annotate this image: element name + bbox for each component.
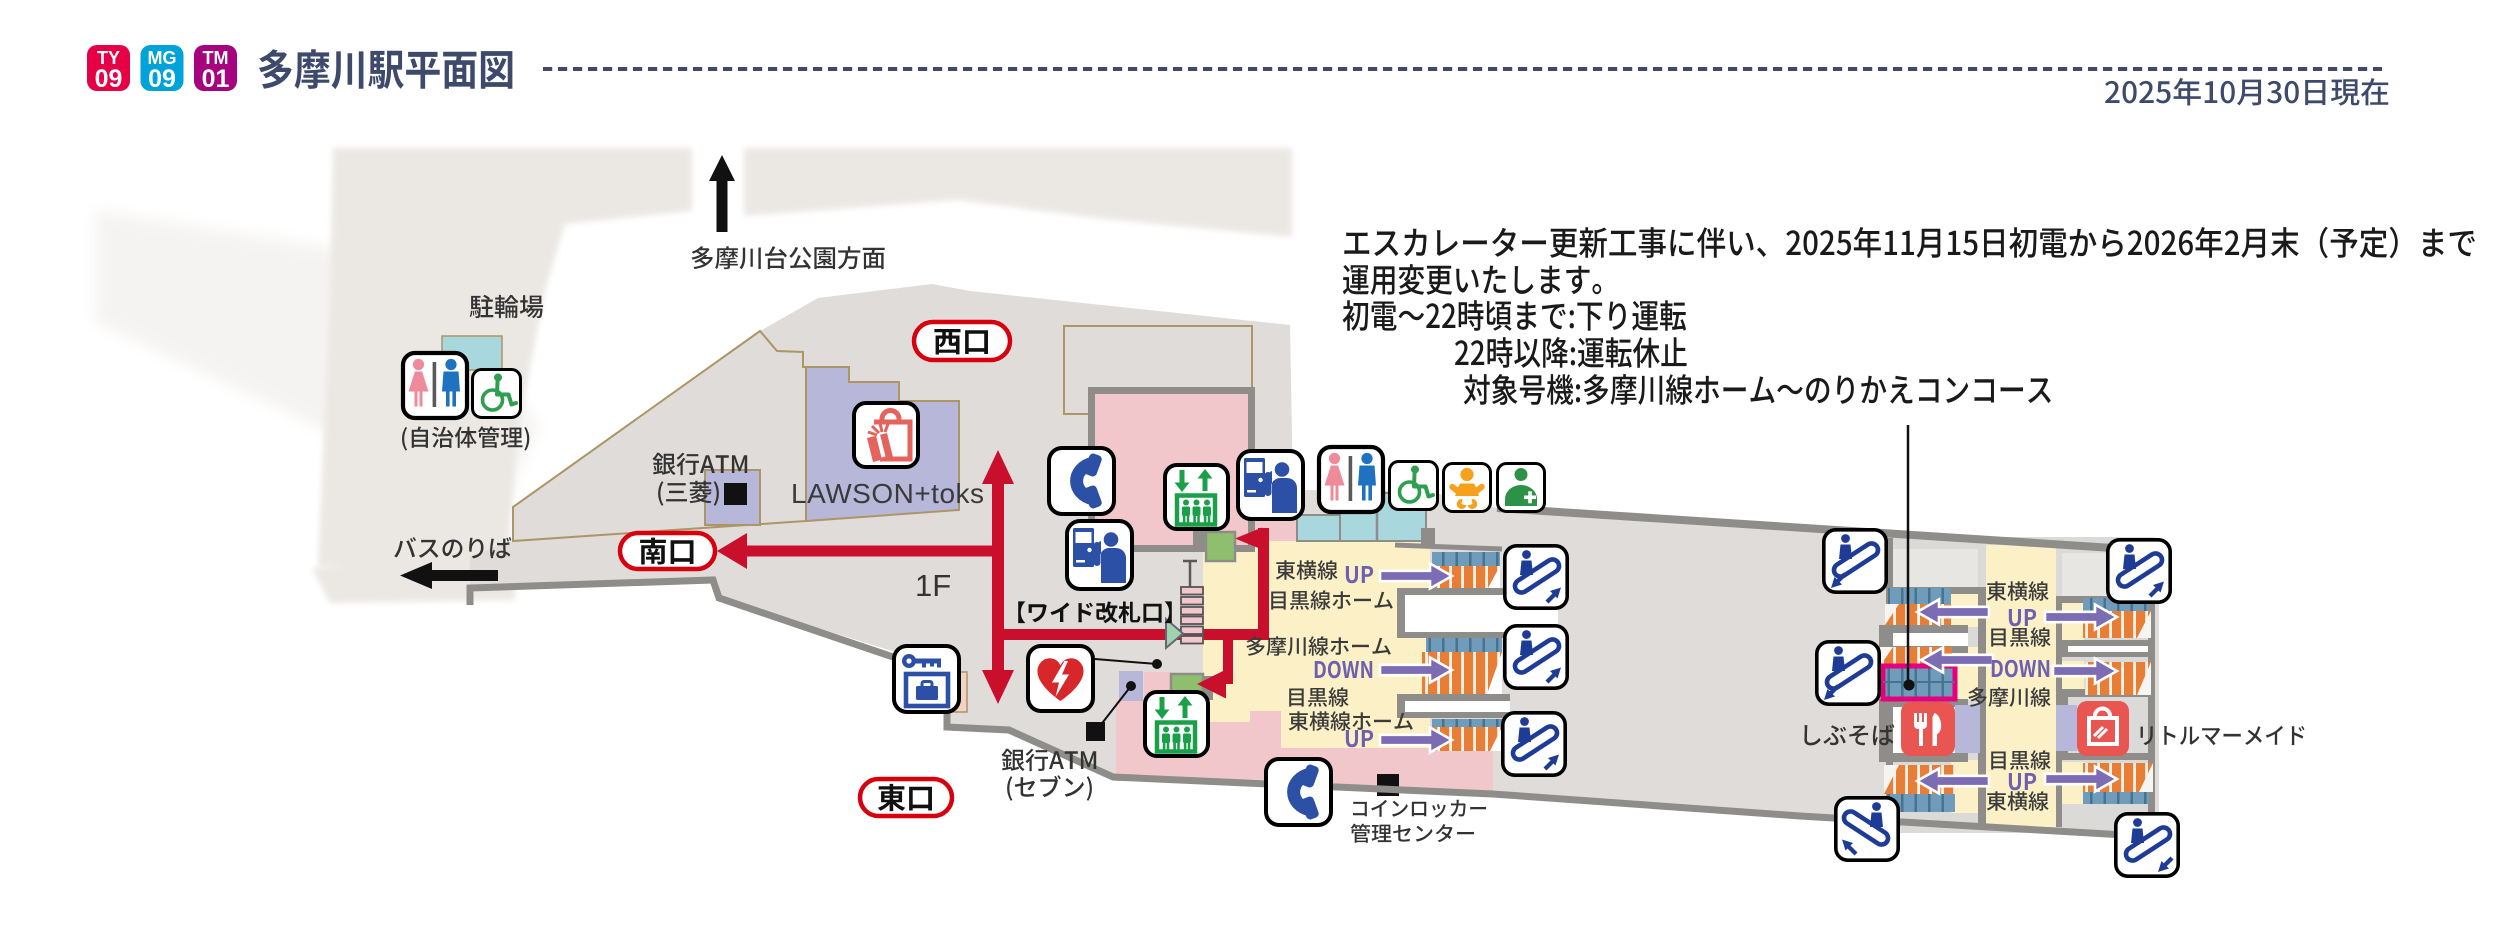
svg-text:LAWSON+toks: LAWSON+toks xyxy=(791,478,985,509)
svg-text:09: 09 xyxy=(95,65,123,93)
svg-text:01: 01 xyxy=(202,65,230,93)
svg-text:09: 09 xyxy=(148,65,176,93)
svg-text:1F: 1F xyxy=(915,568,951,603)
